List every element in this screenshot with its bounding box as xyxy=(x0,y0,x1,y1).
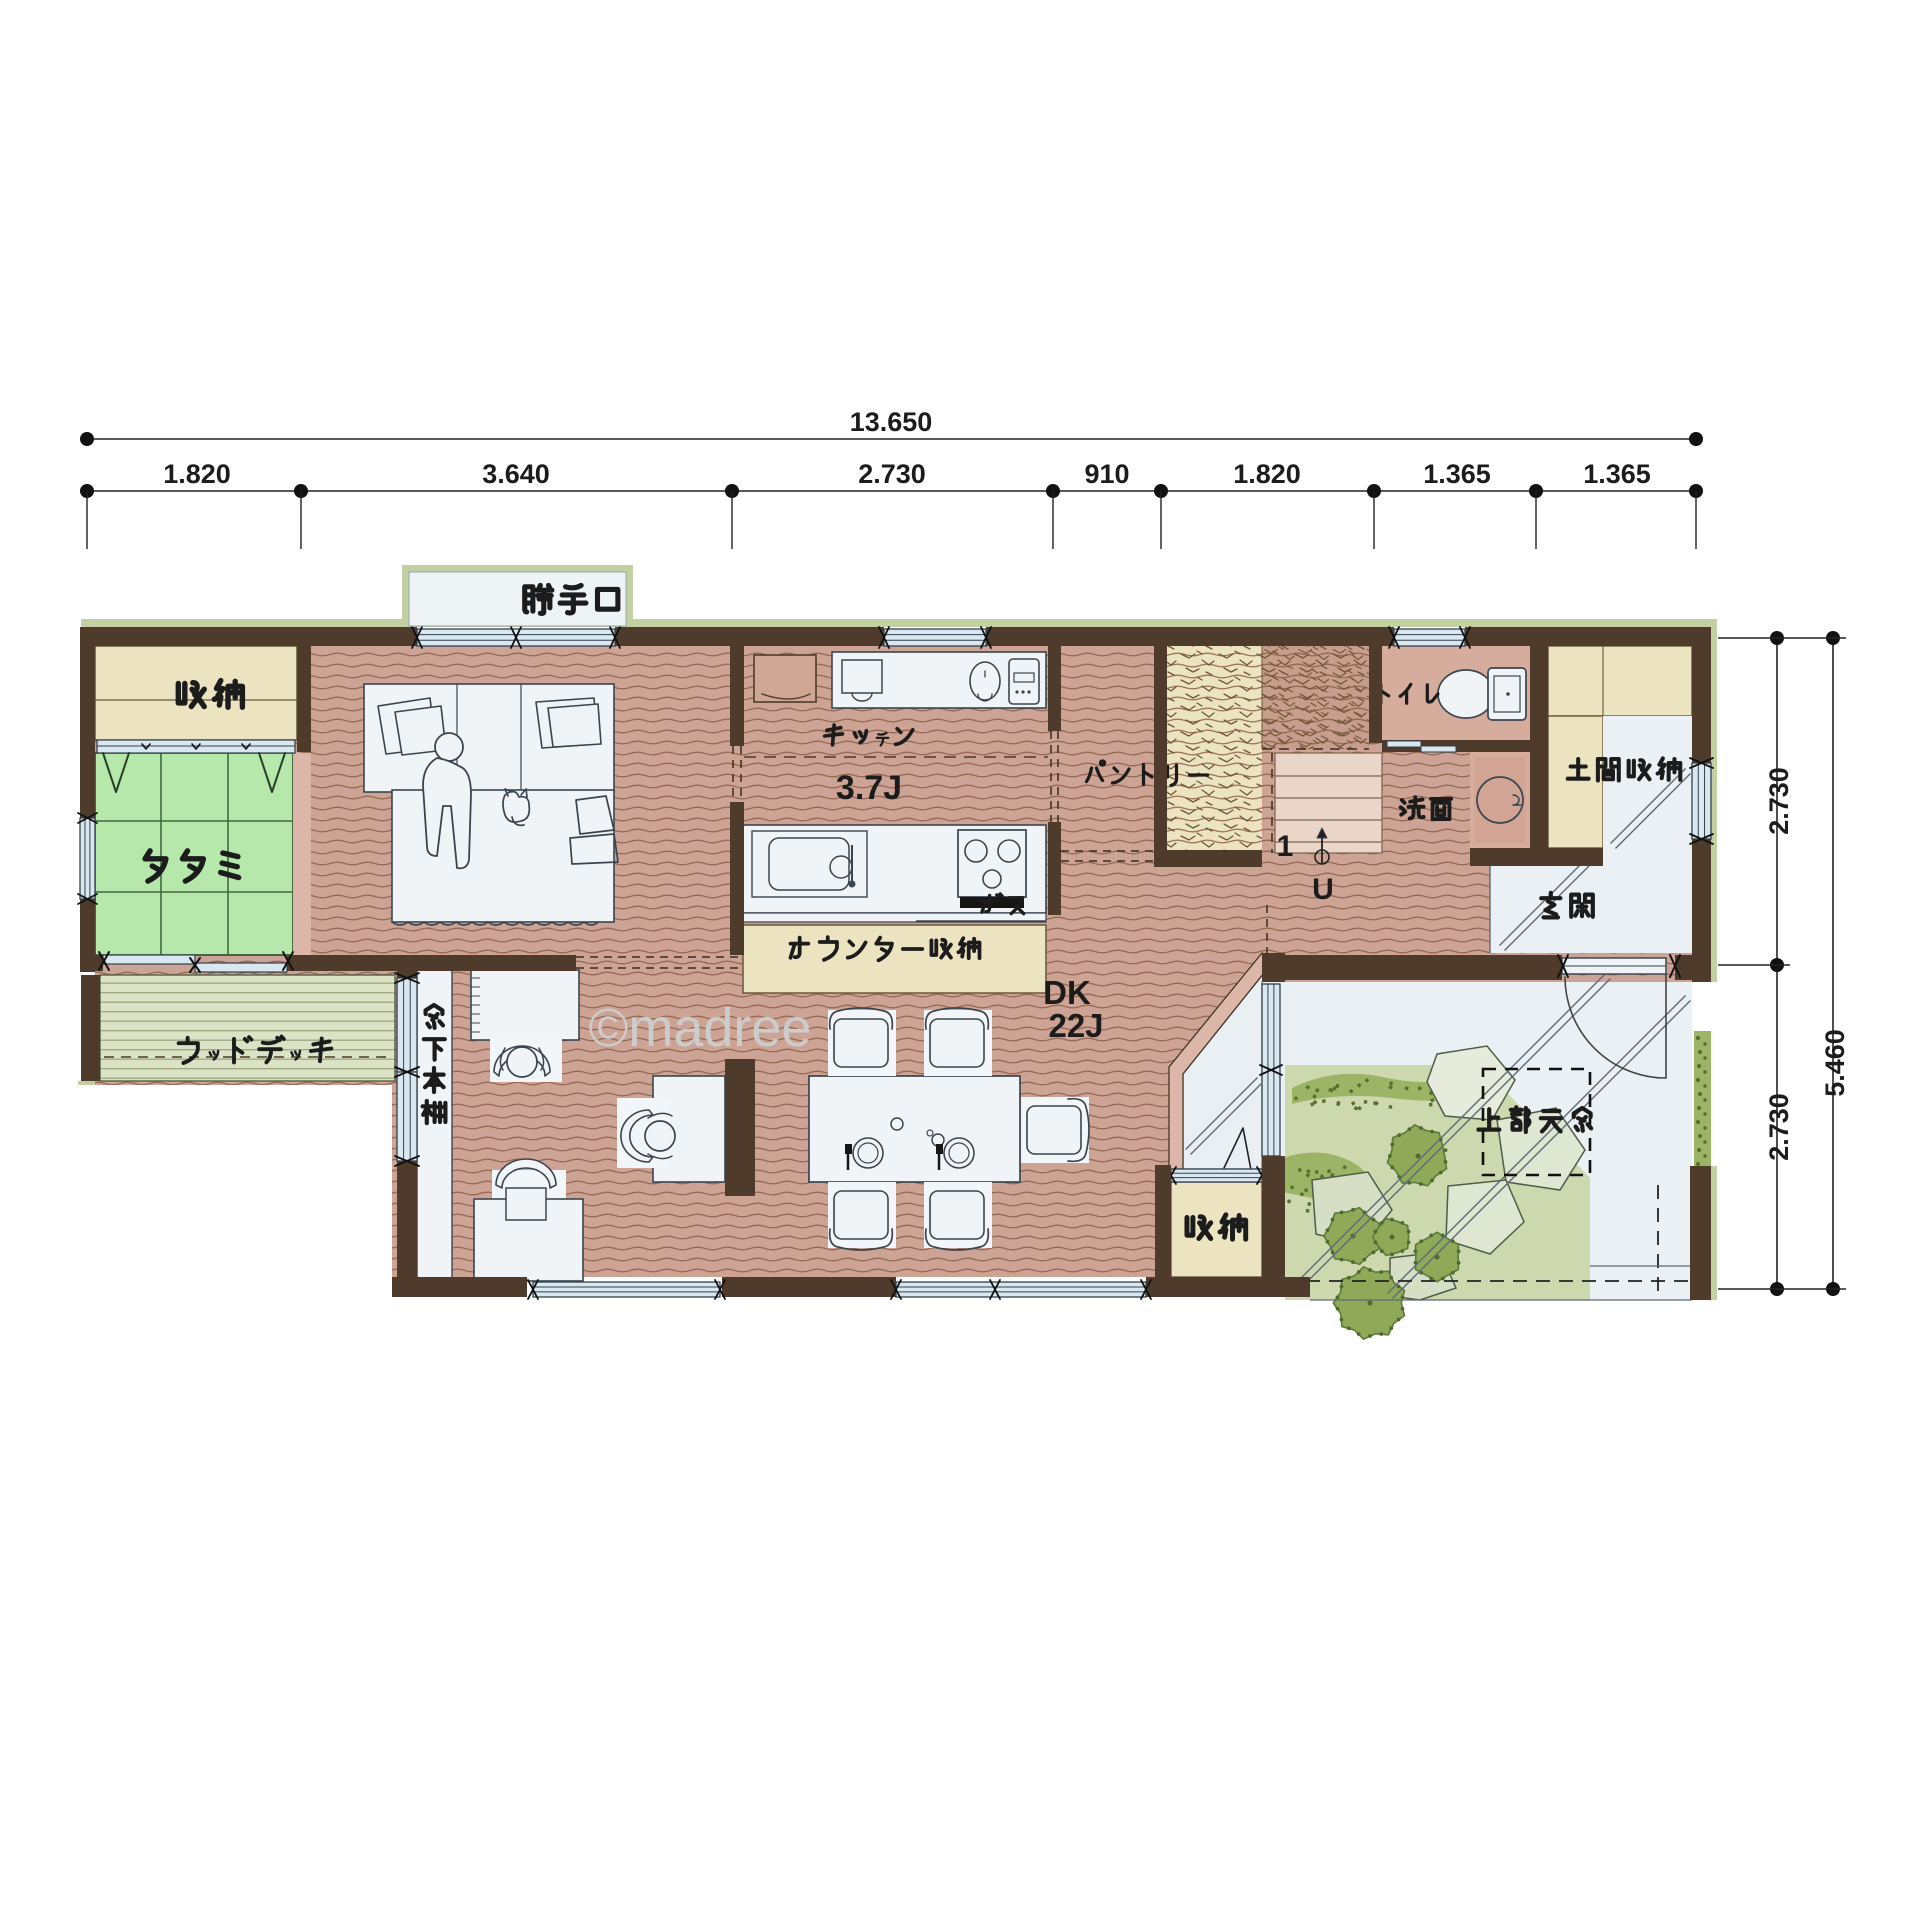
svg-text:1.365: 1.365 xyxy=(1423,459,1491,489)
svg-text:1.820: 1.820 xyxy=(1233,459,1301,489)
svg-text:22J: 22J xyxy=(1048,1007,1103,1044)
svg-text:910: 910 xyxy=(1084,459,1129,489)
svg-text:1.365: 1.365 xyxy=(1583,459,1651,489)
svg-text:2.730: 2.730 xyxy=(1764,1093,1794,1161)
svg-text:U: U xyxy=(1312,873,1334,906)
svg-text:2.730: 2.730 xyxy=(858,459,926,489)
svg-text:3.7J: 3.7J xyxy=(836,769,902,807)
svg-text:2.730: 2.730 xyxy=(1764,767,1794,835)
svg-text:DK: DK xyxy=(1043,974,1091,1011)
svg-text:13.650: 13.650 xyxy=(850,407,933,437)
svg-text:3.640: 3.640 xyxy=(482,459,550,489)
svg-text:5.460: 5.460 xyxy=(1820,1029,1850,1097)
svg-text:©madree: ©madree xyxy=(589,998,812,1058)
svg-text:1.820: 1.820 xyxy=(163,459,231,489)
svg-text:1: 1 xyxy=(1277,830,1294,863)
